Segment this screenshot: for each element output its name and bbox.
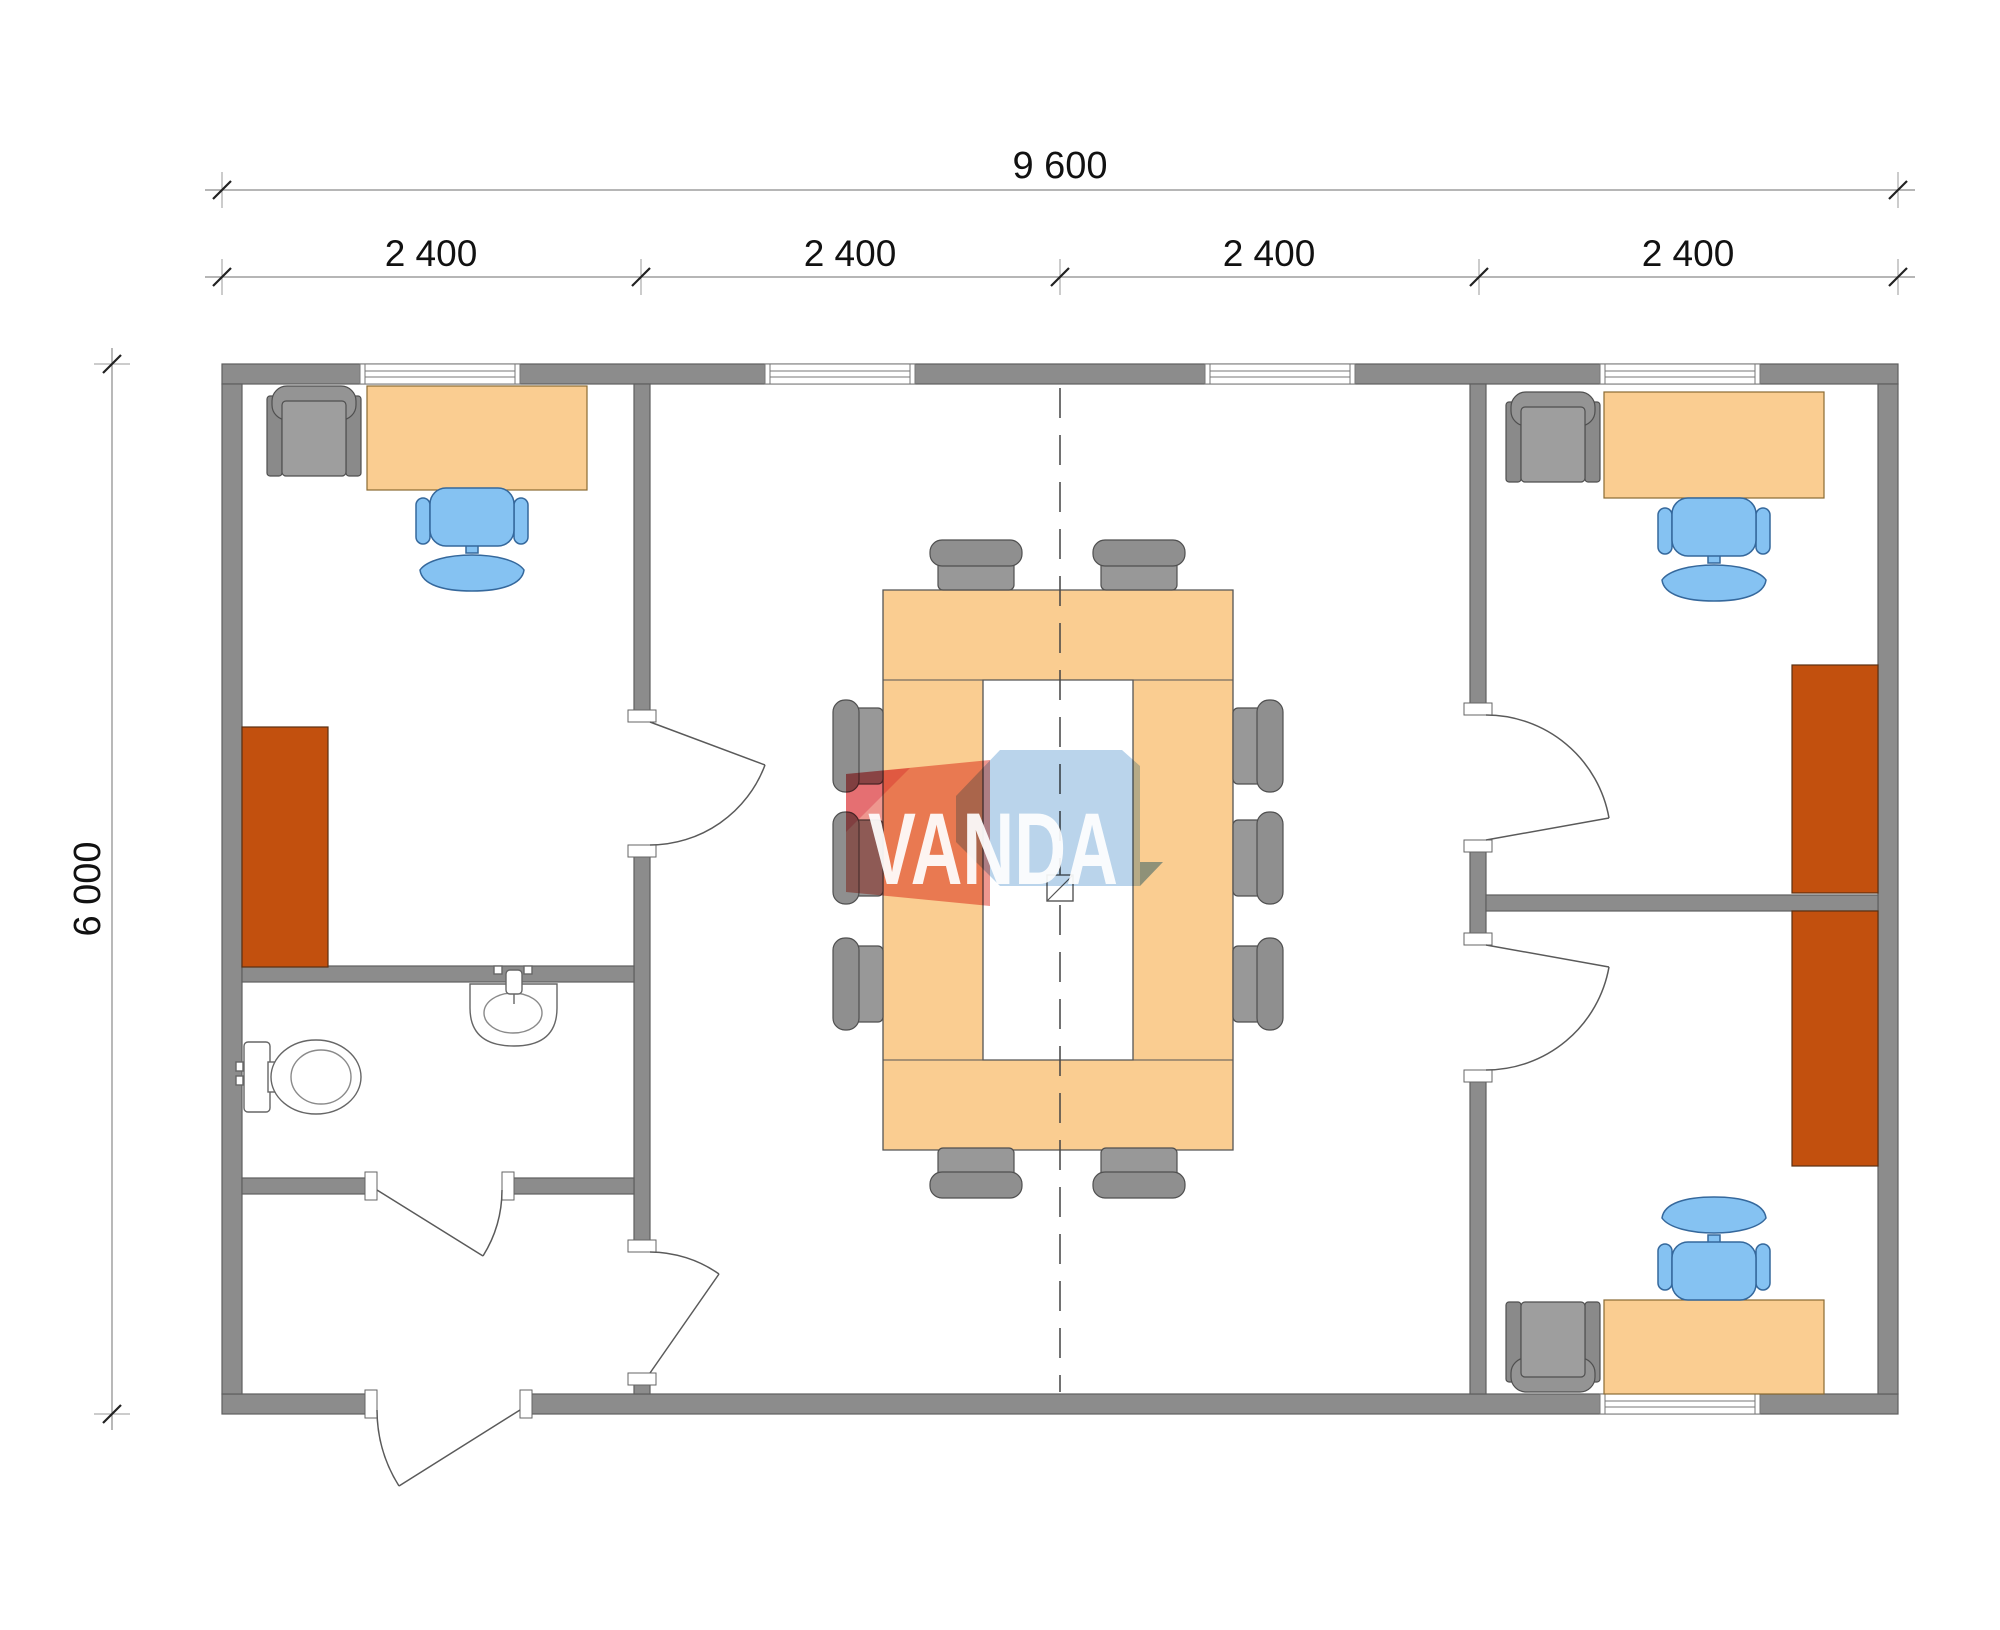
- jamb: [1464, 703, 1492, 715]
- jamb: [1464, 933, 1492, 945]
- dimension-module-1: 2 400: [385, 233, 478, 274]
- desk-office1: [367, 386, 587, 490]
- conference-chair: [1233, 700, 1283, 792]
- conference-chair: [930, 1148, 1022, 1198]
- door-bathroom: [377, 1190, 502, 1256]
- jamb: [1464, 1070, 1492, 1082]
- watermark: VANDA: [846, 750, 1163, 906]
- dimension-module-4: 2 400: [1642, 233, 1735, 274]
- window-meeting-left: [765, 364, 915, 384]
- task-chair-office3: [1658, 1197, 1770, 1300]
- jamb: [520, 1390, 532, 1418]
- door-entry: [377, 1410, 520, 1486]
- desk-office2: [1604, 392, 1824, 498]
- jamb: [502, 1172, 514, 1200]
- wall-interior-right-column: [1470, 384, 1486, 1394]
- cabinet-office2: [1792, 665, 1878, 893]
- guest-armchair-office2: [1506, 392, 1600, 482]
- opening-hall-door: [632, 1252, 652, 1373]
- wall-bathroom-top: [242, 966, 634, 982]
- task-chair-office2: [1658, 498, 1770, 601]
- wall-exterior-left: [222, 384, 242, 1394]
- door-hall-to-meeting: [650, 1252, 719, 1373]
- conference-chair: [1233, 938, 1283, 1030]
- task-chair-office1: [416, 488, 528, 591]
- door-office1: [650, 722, 765, 845]
- floor-plan-svg: VANDA: [0, 0, 2000, 1630]
- bathroom: [236, 966, 557, 1114]
- cabinet-office3: [1792, 911, 1878, 1166]
- door-office2: [1486, 715, 1609, 840]
- jamb: [365, 1390, 377, 1418]
- opening-office2-door: [1468, 715, 1488, 840]
- cabinet-office1: [242, 727, 328, 967]
- conference-chair: [1233, 812, 1283, 904]
- jamb: [628, 710, 656, 722]
- window-office2: [1600, 364, 1760, 384]
- dimension-total-height: 6 000: [67, 841, 109, 936]
- jamb: [1464, 840, 1492, 852]
- guest-armchair-office1: [267, 386, 361, 476]
- jamb: [628, 845, 656, 857]
- window-office1: [360, 364, 520, 384]
- dimension-module-2: 2 400: [804, 233, 897, 274]
- toilet: [236, 1040, 361, 1114]
- jamb: [628, 1373, 656, 1385]
- floor-plan-page: VANDA: [0, 0, 2000, 1630]
- opening-bathroom-door: [377, 1176, 502, 1196]
- dimension-module-3: 2 400: [1223, 233, 1316, 274]
- guest-armchair-office3: [1506, 1302, 1600, 1392]
- window-meeting-right: [1205, 364, 1355, 384]
- jamb: [628, 1240, 656, 1252]
- opening-office1-door: [632, 722, 652, 845]
- opening-entry-door: [377, 1392, 520, 1416]
- conference-chair: [1093, 540, 1185, 590]
- window-office3: [1600, 1394, 1760, 1414]
- conference-chair: [930, 540, 1022, 590]
- wall-exterior-right: [1878, 384, 1898, 1394]
- dimension-total-width: 9 600: [1012, 145, 1107, 187]
- watermark-text: VANDA: [868, 792, 1118, 906]
- conference-chair: [833, 938, 883, 1030]
- conference-chair: [1093, 1148, 1185, 1198]
- desk-office3: [1604, 1300, 1824, 1394]
- jamb: [365, 1172, 377, 1200]
- door-office3: [1486, 945, 1609, 1070]
- wall-office-divider-right: [1486, 895, 1878, 911]
- opening-office3-door: [1468, 945, 1488, 1070]
